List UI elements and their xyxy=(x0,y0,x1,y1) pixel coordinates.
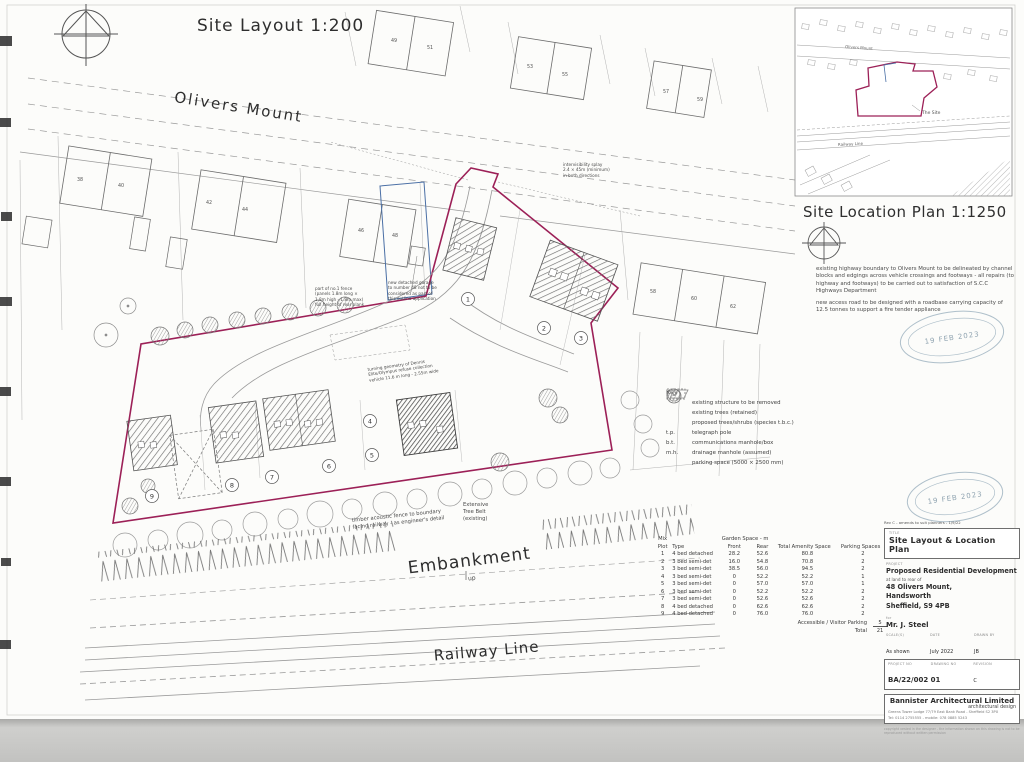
mh-abbr: m.h. xyxy=(666,450,692,456)
key-item: existing structure to be removed xyxy=(666,400,846,406)
location-plan: Olivers Mount The Site Railway Line xyxy=(795,8,1012,196)
tree-belt-note: Extensive Tree Belt (existing) xyxy=(463,502,488,522)
key-item: t.p. telegraph pole xyxy=(666,430,846,436)
cell-type: 3 bed semi-det xyxy=(670,589,720,597)
plot-number-3: 3 xyxy=(579,335,583,343)
schedule-row: 2 3 bed semi-det 16.0 54.8 70.8 2 xyxy=(655,559,887,567)
schedule-row: 8 4 bed detached 0 62.6 62.6 2 xyxy=(655,604,887,612)
firm-address: Greens Tower Lodge 77/79 East Bank Road … xyxy=(888,710,1016,715)
cell-plot: 2 xyxy=(655,559,670,567)
schedule-row: 3 3 bed semi-det 38.5 56.0 94.5 2 xyxy=(655,566,887,574)
key-label: existing structure to be removed xyxy=(692,400,781,406)
key-item: existing trees (retained) xyxy=(666,410,846,416)
house-number: 53 xyxy=(527,64,533,70)
plot-number-9: 9 xyxy=(150,493,154,501)
date-label: DATE xyxy=(930,633,974,637)
drawing-no: 01 xyxy=(931,676,941,684)
house-numbers: 49 51 53 55 57 59 38 40 42 44 46 48 58 6… xyxy=(77,38,736,310)
highway-note-2: new access road to be designed with a ro… xyxy=(816,300,1014,315)
cell-parking: 2 xyxy=(839,604,887,612)
the-site-label: The Site xyxy=(921,110,941,116)
garage-note: new detached garage to number 48 not to … xyxy=(388,280,437,302)
cell-rear: 57.0 xyxy=(749,581,776,589)
cell-rear: 62.6 xyxy=(749,604,776,612)
project-line: Handsworth xyxy=(886,592,1018,602)
house-number: 51 xyxy=(427,45,433,51)
cell-total: 52.6 xyxy=(776,596,839,604)
project-section: PROJECT Proposed Residential Development… xyxy=(884,559,1020,613)
key-legend: Key existing structure to be removed exi… xyxy=(666,388,846,470)
plot-number-7: 7 xyxy=(270,474,274,482)
cell-plot: 3 xyxy=(655,566,670,574)
cell-plot: 9 xyxy=(655,611,670,619)
copyright-note: copyright vested in the designer - the i… xyxy=(884,727,1020,736)
key-label: drainage manhole (assumed) xyxy=(692,450,771,456)
house-number: 44 xyxy=(242,207,248,213)
key-label: communications manhole/box xyxy=(692,440,773,446)
plot-number-6: 6 xyxy=(327,463,331,471)
cell-plot: 6 xyxy=(655,589,670,597)
embankment-up-label: up xyxy=(468,575,477,583)
plots6-7-house xyxy=(263,390,336,451)
cell-type: 4 bed detached xyxy=(670,604,720,612)
project-no-label: PROJECT NO xyxy=(888,662,931,666)
railway-line-label: Railway Line xyxy=(433,637,540,664)
scan-marks xyxy=(0,36,12,649)
house-number: 38 xyxy=(77,177,83,183)
for-label: for xyxy=(886,616,1018,620)
cell-rear: 52.6 xyxy=(749,551,776,559)
cell-parking: 2 xyxy=(839,566,887,574)
cell-front: 28.2 xyxy=(720,551,749,559)
col-type: Type xyxy=(670,544,720,552)
project-label: PROJECT xyxy=(886,562,1018,566)
cell-total: 70.8 xyxy=(776,559,839,567)
schedule-row: 9 4 bed detached 0 76.0 76.0 2 xyxy=(655,611,887,619)
cell-parking: 2 xyxy=(839,559,887,567)
cell-type: 3 bed semi-det xyxy=(670,581,720,589)
houses-57-59 xyxy=(647,61,712,117)
col-rear: Rear xyxy=(749,544,776,552)
proposed-trees xyxy=(122,297,568,514)
schedule-total-row: Total 21 xyxy=(655,628,887,634)
revision-value: C xyxy=(973,678,977,684)
plots2-3-house xyxy=(530,240,618,321)
schedule-row: 6 3 bed semi-det 0 52.2 52.2 2 xyxy=(655,589,887,597)
cell-parking: 1 xyxy=(839,581,887,589)
cell-parking: 2 xyxy=(839,551,887,559)
col-total: Total Amenity Space xyxy=(776,544,839,552)
house-number: 49 xyxy=(391,38,397,44)
client-section: for Mr. J. Steel xyxy=(884,613,1020,631)
title-block: Rev C - amends to suit planners - 1/9/22… xyxy=(884,520,1020,736)
cell-parking: 2 xyxy=(839,611,887,619)
key-label: telegraph pole xyxy=(692,430,731,436)
existing-trees xyxy=(94,298,136,347)
total-label: Total xyxy=(855,628,867,634)
cell-rear: 56.0 xyxy=(749,566,776,574)
firm-section: Bannister Architectural Limited architec… xyxy=(884,694,1020,723)
plot-number-1: 1 xyxy=(466,296,470,304)
cell-front: 0 xyxy=(720,581,749,589)
cell-type: 4 bed detached xyxy=(670,551,720,559)
col-parking: Parking Spaces xyxy=(839,544,887,552)
firm-telephone: Tel: 0114 2755555 - mobile: 078 0885 524… xyxy=(888,716,1016,721)
numbers-row: PROJECT NOBA/22/002 DRAWING NO01 REVISIO… xyxy=(884,659,1020,690)
revision-label: REVISION xyxy=(973,662,1016,666)
key-item: m.h. drainage manhole (assumed) xyxy=(666,450,846,456)
railway-lines xyxy=(80,592,725,700)
cell-plot: 7 xyxy=(655,596,670,604)
plot9-house xyxy=(127,415,178,471)
schedule-rows: 1 4 bed detached 28.2 52.6 80.8 2 2 3 be… xyxy=(655,551,887,619)
plan-linework: 1 2 3 4 5 6 7 8 9 49 51 53 55 57 59 38 4… xyxy=(0,0,1024,762)
cell-type: 3 bed semi-det xyxy=(670,566,720,574)
cell-plot: 5 xyxy=(655,581,670,589)
received-stamp-2: 19 FEB 2023 xyxy=(904,467,1006,528)
house-number: 46 xyxy=(358,228,364,234)
fence-note: part of no.1 fence (panels 1.8m long × 1… xyxy=(315,286,364,308)
north-arrow xyxy=(54,4,118,66)
plot-number-4: 4 xyxy=(368,418,372,426)
title-box: TITLE Site Layout & Location Plan xyxy=(884,528,1020,559)
cell-total: 57.0 xyxy=(776,581,839,589)
plots4-5-house xyxy=(396,393,457,456)
cell-type: 3 bed semi-det xyxy=(670,574,720,582)
stamp-date: 19 FEB 2023 xyxy=(924,330,980,346)
key-label: proposed trees/shrubs (species t.b.c.) xyxy=(692,420,794,426)
drawn-by-label: DRAWN BY xyxy=(974,633,1018,637)
schedule-row: 7 3 bed semi-det 0 52.6 52.6 2 xyxy=(655,596,887,604)
scale-date-drawn-row: SCALE(S)As shown DATEJuly 2022 DRAWN BYJ… xyxy=(884,631,1020,659)
cell-total: 76.0 xyxy=(776,611,839,619)
houses-42-44 xyxy=(192,170,286,243)
garden-space-header: Garden Space - m xyxy=(720,536,776,544)
drawing-no-label: DRAWING NO xyxy=(931,662,974,666)
key-label: existing trees (retained) xyxy=(692,410,757,416)
key-item: b.t. communications manhole/box xyxy=(666,440,846,446)
page-title: Site Layout 1:200 xyxy=(197,16,364,36)
revision-note: Rev C - amends to suit planners - 1/9/22 xyxy=(884,520,1020,525)
house-number: 62 xyxy=(730,304,736,310)
location-plan-title: Site Location Plan 1:1250 xyxy=(803,203,1007,221)
cell-front: 0 xyxy=(720,611,749,619)
project-no: BA/22/002 xyxy=(888,676,928,684)
house-number: 60 xyxy=(691,296,697,302)
cell-parking: 1 xyxy=(839,574,887,582)
plot8-house xyxy=(208,401,263,463)
project-line: Proposed Residential Development xyxy=(886,567,1018,577)
drawing-title: Site Layout & Location Plan xyxy=(889,536,1015,554)
house-number: 59 xyxy=(697,97,703,103)
cell-total: 94.5 xyxy=(776,566,839,574)
cell-rear: 52.2 xyxy=(749,574,776,582)
house-number: 58 xyxy=(650,289,656,295)
house-number: 42 xyxy=(206,200,212,206)
house-number: 40 xyxy=(118,183,124,189)
highway-notes: existing highway boundary to Olivers Mou… xyxy=(816,266,1014,320)
tp-abbr: t.p. xyxy=(666,430,692,436)
cell-type: 3 bed semi-det xyxy=(670,596,720,604)
cell-total: 52.2 xyxy=(776,589,839,597)
intervisibility-note: intervisibility splay 2.4 × 45m (minimum… xyxy=(563,162,610,178)
cell-parking: 2 xyxy=(839,596,887,604)
col-front: Front xyxy=(720,544,749,552)
house-number: 55 xyxy=(562,72,568,78)
cell-total: 52.2 xyxy=(776,574,839,582)
date-value: July 2022 xyxy=(930,649,953,655)
project-line: 48 Olivers Mount, xyxy=(886,583,1018,593)
olivers-mount-road xyxy=(20,78,795,254)
cell-front: 0 xyxy=(720,604,749,612)
plot-number-5: 5 xyxy=(370,452,374,460)
cell-rear: 54.8 xyxy=(749,559,776,567)
accessible-label: Accessible / Visitor Parking xyxy=(798,620,867,627)
cell-rear: 52.2 xyxy=(749,589,776,597)
schedule-row: 1 4 bed detached 28.2 52.6 80.8 2 xyxy=(655,551,887,559)
houses-38-40 xyxy=(60,146,152,216)
schedule-row: 4 3 bed semi-det 0 52.2 52.2 1 xyxy=(655,574,887,582)
outbuildings xyxy=(22,216,425,269)
key-item: proposed trees/shrubs (species t.b.c.) xyxy=(666,420,846,426)
houses-49-51 xyxy=(368,10,453,76)
houses-58-60-62 xyxy=(633,263,766,334)
house-number: 48 xyxy=(392,233,398,239)
highway-note-1: existing highway boundary to Olivers Mou… xyxy=(816,266,1014,295)
stamp-date: 19 FEB 2023 xyxy=(927,490,983,506)
scale-value: As shown xyxy=(886,649,910,655)
olivers-mount-label: Olivers Mount xyxy=(173,88,304,126)
key-label: parking space (5000 × 2500 mm) xyxy=(692,460,783,466)
house-number: 57 xyxy=(663,89,669,95)
cell-front: 16.0 xyxy=(720,559,749,567)
plot-number-8: 8 xyxy=(230,482,234,490)
client-name: Mr. J. Steel xyxy=(886,621,1018,629)
cell-total: 80.8 xyxy=(776,551,839,559)
scale-label: SCALE(S) xyxy=(886,633,930,637)
houses-53-55 xyxy=(510,37,591,100)
cell-parking: 2 xyxy=(839,589,887,597)
col-plot: Plot xyxy=(655,544,670,552)
plot-number-2: 2 xyxy=(542,325,546,333)
embankment-label: Embankment xyxy=(407,544,532,579)
key-title: Key xyxy=(666,388,846,396)
mix-header: Mix xyxy=(655,536,670,544)
site-plan-drawing: 1 2 3 4 5 6 7 8 9 49 51 53 55 57 59 38 4… xyxy=(0,0,1024,762)
plot1-house xyxy=(443,218,497,281)
cell-rear: 76.0 xyxy=(749,611,776,619)
cell-front: 38.5 xyxy=(720,566,749,574)
cell-total: 62.6 xyxy=(776,604,839,612)
cell-plot: 4 xyxy=(655,574,670,582)
schedule-accessible-row: Accessible / Visitor Parking 5 xyxy=(655,620,887,627)
cell-front: 0 xyxy=(720,596,749,604)
houses-46-48 xyxy=(340,199,416,267)
key-item: parking space (5000 × 2500 mm) xyxy=(666,460,846,466)
project-line: Sheffield, S9 4PB xyxy=(886,602,1018,612)
schedule-row: 5 3 bed semi-det 0 57.0 57.0 1 xyxy=(655,581,887,589)
cell-plot: 1 xyxy=(655,551,670,559)
title-label: TITLE xyxy=(889,531,1015,535)
cell-front: 0 xyxy=(720,574,749,582)
drawn-by-value: JB xyxy=(974,649,979,655)
cell-type: 3 bed semi-det xyxy=(670,559,720,567)
bt-abbr: b.t. xyxy=(666,440,692,446)
cell-type: 4 bed detached xyxy=(670,611,720,619)
cell-plot: 8 xyxy=(655,604,670,612)
cell-front: 0 xyxy=(720,589,749,597)
accommodation-schedule: Mix Garden Space - m Plot Type Front Rea… xyxy=(655,536,887,634)
location-north-arrow xyxy=(802,222,846,264)
cell-rear: 52.6 xyxy=(749,596,776,604)
